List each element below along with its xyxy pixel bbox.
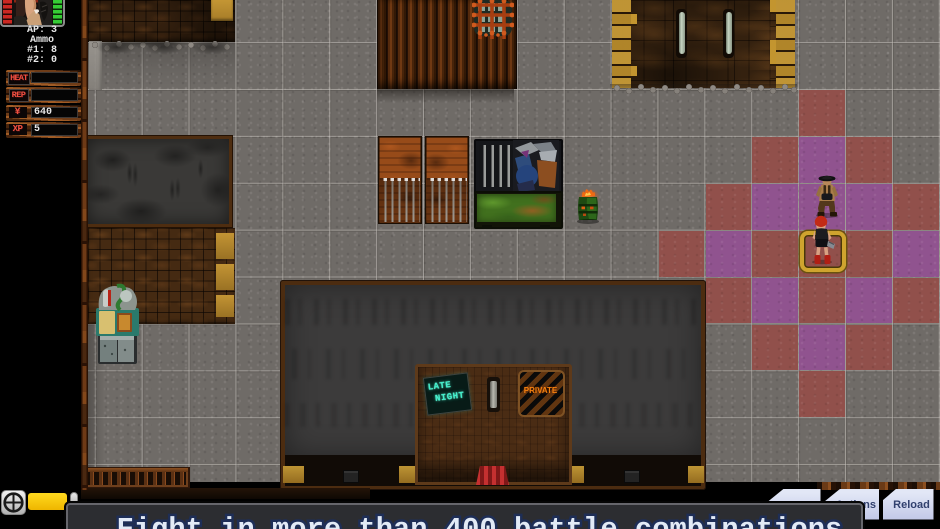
- svg-text:Fight in more than 400 battle: Fight in more than 400 battle combinatio…: [116, 513, 842, 529]
